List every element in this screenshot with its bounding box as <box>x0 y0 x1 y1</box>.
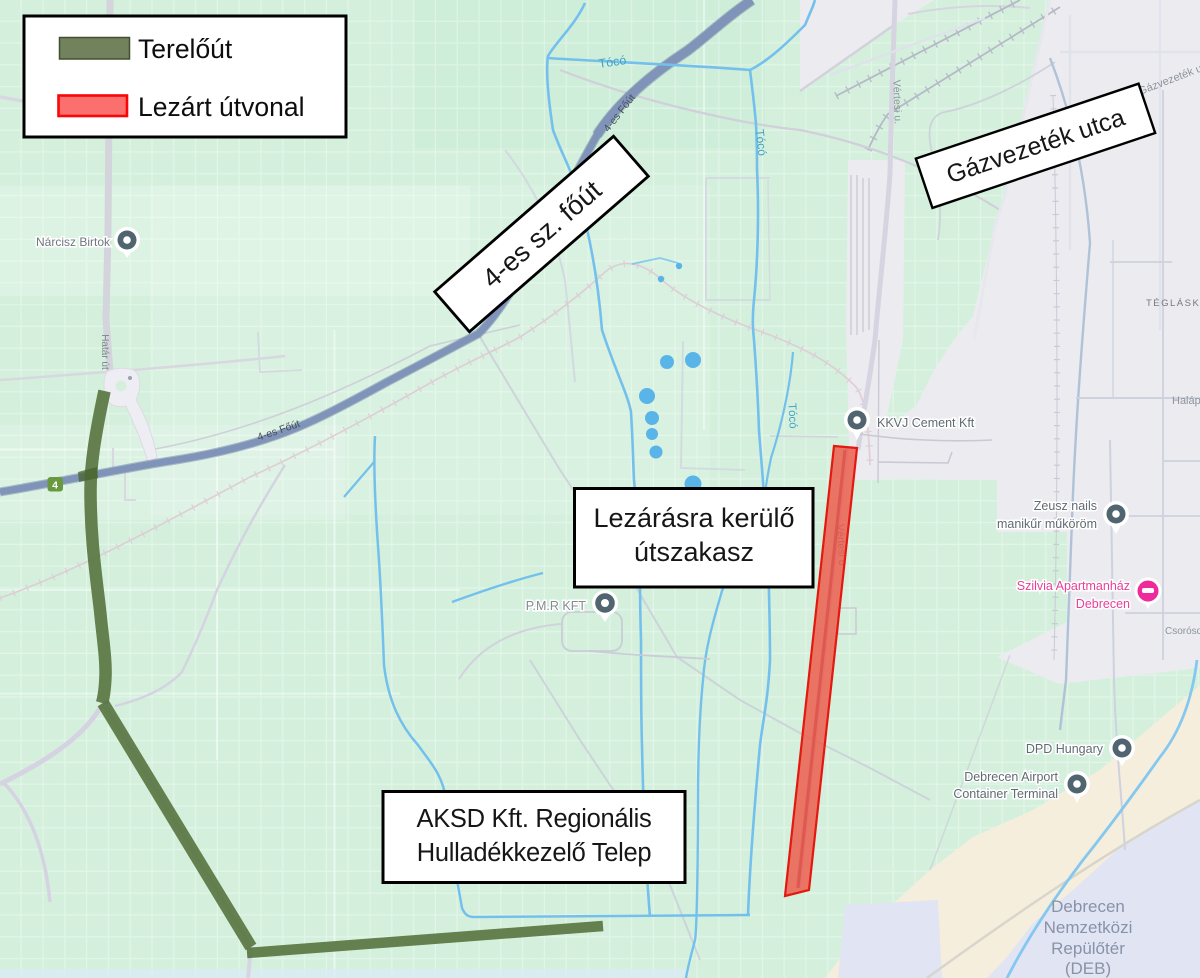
svg-text:Vértesi u.: Vértesi u. <box>890 80 904 125</box>
svg-text:KKVJ Cement Kft: KKVJ Cement Kft <box>877 416 975 430</box>
svg-text:P.M.R KFT: P.M.R KFT <box>526 599 587 613</box>
svg-text:Halápi: Halápi <box>1172 395 1200 407</box>
svg-text:Hulladékkezelő Telep: Hulladékkezelő Telep <box>417 839 652 867</box>
svg-text:Nemzetközi: Nemzetközi <box>1044 918 1133 937</box>
svg-text:AKSD Kft. Regionális: AKSD Kft. Regionális <box>417 805 652 833</box>
svg-text:útszakasz: útszakasz <box>634 537 754 567</box>
svg-text:TÉGLÁSKERT: TÉGLÁSKERT <box>1146 298 1200 309</box>
svg-text:DPD Hungary: DPD Hungary <box>1026 742 1104 756</box>
svg-text:Debrecen: Debrecen <box>1076 597 1130 611</box>
svg-text:(DEB): (DEB) <box>1065 959 1111 978</box>
svg-text:Repülőtér: Repülőtér <box>1051 939 1125 958</box>
svg-text:Csorósd: Csorósd <box>1165 626 1200 637</box>
svg-text:Lezárásra kerülő: Lezárásra kerülő <box>593 503 794 533</box>
svg-text:Nárcisz Birtok: Nárcisz Birtok <box>36 235 111 249</box>
svg-text:manikűr műköröm: manikűr műköröm <box>997 517 1097 531</box>
svg-text:Debrecen Airport: Debrecen Airport <box>964 770 1058 784</box>
svg-text:Debrecen: Debrecen <box>1051 897 1125 916</box>
svg-text:Container Terminal: Container Terminal <box>953 787 1058 801</box>
svg-text:Zeusz nails: Zeusz nails <box>1034 499 1097 513</box>
svg-text:Lezárt útvonal: Lezárt útvonal <box>138 92 304 122</box>
svg-text:4: 4 <box>52 480 58 492</box>
svg-text:Szilvia Apartmanház: Szilvia Apartmanház <box>1017 579 1130 593</box>
svg-text:Terelőút: Terelőút <box>138 34 233 64</box>
svg-text:Tócó: Tócó <box>785 403 798 429</box>
svg-text:Határ út: Határ út <box>99 334 110 370</box>
